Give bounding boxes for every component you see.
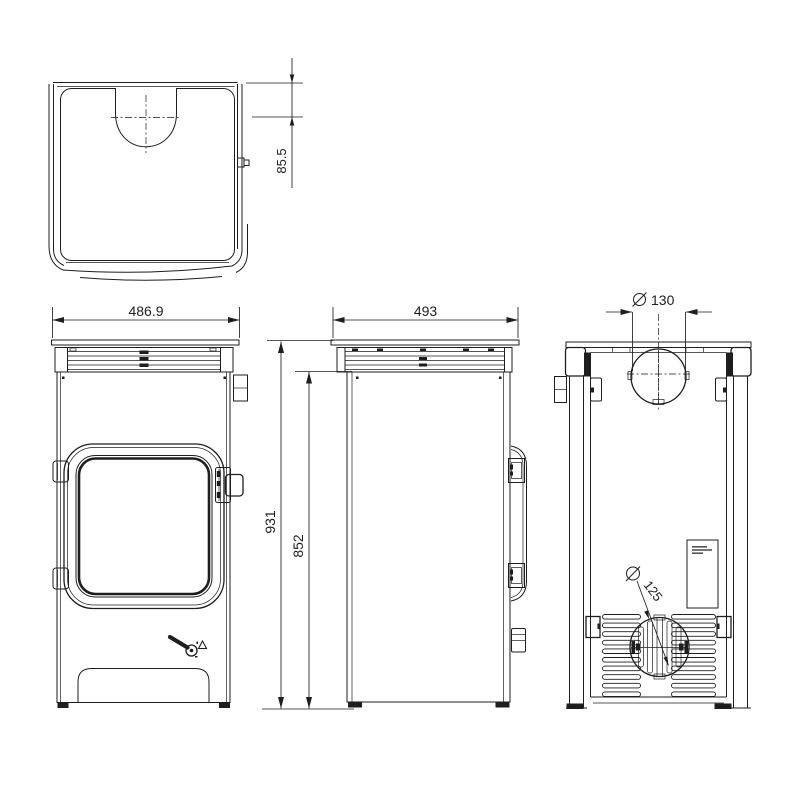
hatch-strip-right (727, 353, 734, 377)
foot-front-right (219, 703, 230, 709)
foot-back-left (567, 704, 584, 710)
dimension-label-130: 130 (651, 292, 675, 308)
dimension-label-486-9: 486.9 (128, 303, 163, 319)
flue-collar (627, 349, 691, 405)
clip-right (716, 378, 727, 401)
glass-window-frame (76, 456, 212, 598)
front-body (57, 372, 230, 703)
foot-front-left (58, 703, 69, 709)
foot-side-right (496, 702, 510, 708)
door-handle-knob (226, 475, 244, 497)
dimension-flue-offset: 85.5 (246, 58, 303, 188)
dimension-front-width: 486.9 (53, 303, 240, 338)
dimension-label-931: 931 (262, 510, 278, 534)
dimension-label-852: 852 (290, 534, 306, 558)
height-dimensions: 931 852 (262, 341, 354, 710)
clip-left (591, 378, 602, 401)
foot-back-right (715, 704, 732, 710)
latch-bolt (238, 158, 250, 167)
top-plate-front (52, 340, 240, 345)
glass-window (79, 459, 209, 595)
dimension-label-85-5: 85.5 (274, 148, 289, 173)
side-fin-block (234, 375, 248, 401)
grille-bracket-right (717, 617, 732, 638)
handle-latch-top (509, 459, 525, 483)
louver-grille-front (55, 348, 233, 373)
side-view: 493 (331, 303, 527, 708)
diameter-symbol-icon (633, 293, 647, 307)
door-handle-side (509, 446, 527, 601)
side-body (347, 372, 510, 702)
back-left-bracket (555, 377, 567, 403)
foot-side-left (348, 702, 362, 708)
warning-triangle-icon (199, 641, 207, 649)
louver-grille-side (337, 348, 512, 373)
back-view: 130 (555, 292, 752, 709)
rating-plate (687, 540, 718, 608)
dimension-label-493: 493 (414, 303, 438, 319)
technical-drawing-page: 85.5 486.9 (0, 0, 800, 800)
stove-door (64, 444, 224, 609)
top-view: 85.5 (49, 58, 303, 280)
front-view: 486.9 (52, 303, 248, 708)
control-lever (170, 637, 207, 658)
flue-cutout (111, 88, 181, 153)
grille-bracket-left (586, 617, 601, 638)
stove-technical-drawing: 85.5 486.9 (0, 0, 800, 800)
door-handle (216, 468, 244, 503)
side-lower-bracket (512, 629, 526, 653)
diameter-symbol-icon (626, 567, 640, 582)
screw-left (62, 377, 65, 380)
corner-block-right (731, 348, 751, 377)
screw-right (224, 377, 227, 380)
dimension-flue-diameter: 130 (606, 292, 712, 410)
top-plate-side (331, 340, 519, 345)
ash-panel (78, 669, 209, 703)
corner-block-left (566, 348, 586, 377)
rating-plate-text-lines (692, 546, 707, 548)
vent-grille (603, 615, 716, 697)
handle-latch-bottom (509, 564, 525, 588)
dimension-depth: 493 (333, 303, 518, 338)
hatch-strip-left (584, 353, 591, 377)
